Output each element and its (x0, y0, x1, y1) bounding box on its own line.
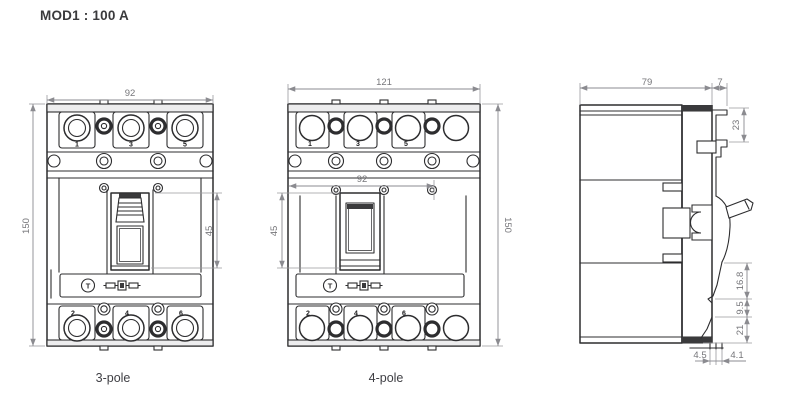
top-terminal-1: 1 (296, 112, 329, 148)
aux-hole (97, 322, 111, 336)
cover-screw (152, 303, 164, 315)
terminal-number: 3 (356, 141, 360, 148)
small-screw (380, 186, 389, 195)
rating-dial (348, 283, 357, 288)
cover-screw (330, 303, 342, 315)
handle-cap (347, 204, 373, 209)
trip-button-label: T (86, 282, 91, 291)
bottom-tab (154, 346, 162, 350)
bottom-terminal-2: 2 (59, 306, 95, 341)
dim-lower-mid: 9.5 (715, 299, 752, 317)
corner-screw (289, 155, 301, 167)
bottom-mount-bar (288, 340, 480, 346)
aux-hole (425, 119, 439, 133)
top-tab (380, 100, 388, 104)
side-tab (663, 183, 682, 191)
top-terminal-5: 5 (167, 112, 203, 149)
panel-top-profile (712, 110, 727, 140)
toggle-handle (116, 198, 144, 222)
bottom-terminal-4: 4 (344, 306, 377, 341)
terminal-number: 5 (183, 142, 187, 149)
svg-text:45: 45 (269, 226, 280, 237)
cover-screw (329, 154, 344, 169)
dim-front-cover: 7 (712, 77, 727, 106)
bottom-terminal-6: 6 (392, 306, 425, 341)
cover-screw (98, 303, 110, 315)
cover-screw (378, 303, 390, 315)
dim-handle-window: 45 (269, 193, 340, 268)
four-pole-front-view: 1 3 5 (269, 77, 513, 385)
svg-text:92: 92 (357, 174, 368, 185)
three-pole-caption: 3-pole (96, 371, 131, 385)
terminal-number: 5 (404, 141, 408, 148)
bottom-tab (332, 346, 340, 350)
top-terminal-3: 3 (113, 112, 149, 149)
dimension-drawing-page: MOD1 : 100 A 1 (0, 0, 800, 409)
top-tab (154, 100, 162, 104)
toggle-handle-area (336, 193, 384, 274)
bottom-tab (428, 346, 436, 350)
svg-text:4.5: 4.5 (693, 350, 706, 361)
cover-screw (377, 154, 392, 169)
svg-text:23: 23 (731, 120, 742, 131)
dim-height: 150 (21, 104, 45, 346)
side-tab (663, 254, 682, 262)
top-terminal-1: 1 (59, 112, 95, 149)
top-tab (332, 100, 340, 104)
panel-tab (697, 141, 716, 153)
bottom-terminal-4: 4 (113, 306, 149, 341)
aux-hole (329, 322, 343, 336)
dim-width: 92 (47, 88, 213, 104)
trip-button-label: T (328, 282, 333, 291)
svg-text:121: 121 (376, 77, 392, 88)
terminal-number: 1 (75, 142, 79, 149)
four-pole-caption: 4-pole (369, 371, 404, 385)
cover-screw (426, 303, 438, 315)
top-terminal-neutral (444, 116, 469, 141)
aux-hole (377, 119, 391, 133)
svg-text:4.1: 4.1 (730, 350, 743, 361)
svg-text:92: 92 (125, 88, 136, 99)
trip-unit-band: T (296, 274, 464, 297)
corner-screw (48, 155, 60, 167)
bottom-terminal-6: 6 (167, 306, 203, 341)
svg-text:7: 7 (717, 77, 722, 88)
top-mount-bar (288, 104, 480, 112)
cover-screw (425, 154, 440, 169)
terminal-number: 3 (129, 142, 133, 149)
bottom-tab (380, 346, 388, 350)
aux-hole (151, 119, 165, 133)
front-cap-bottom (682, 337, 712, 343)
corner-screw (200, 155, 212, 167)
rating-dial (106, 283, 115, 288)
side-clip-plate (663, 208, 690, 238)
corner-screw (467, 155, 479, 167)
bottom-terminal-2: 2 (296, 306, 329, 341)
toggle-handle-area (107, 190, 153, 274)
aux-hole (377, 322, 391, 336)
top-mount-bar (47, 104, 213, 112)
small-screw (154, 184, 163, 193)
small-screw (428, 186, 437, 195)
dim-top-offset: 23 (729, 108, 749, 142)
svg-text:9.5: 9.5 (735, 301, 746, 314)
svg-text:150: 150 (21, 218, 32, 234)
aux-hole (97, 119, 111, 133)
dim-handle-window: 45 (151, 193, 222, 268)
svg-text:45: 45 (204, 226, 215, 237)
top-tab (100, 100, 108, 104)
panel-hook (716, 140, 727, 196)
three-pole-front-view: 1 3 5 (21, 88, 222, 385)
cover-screw (97, 154, 112, 169)
dim-height: 150 (482, 104, 513, 346)
terminal-number: 1 (308, 141, 312, 148)
handle-window (117, 226, 143, 264)
handle-window (346, 203, 374, 253)
side-view: 79 7 23 16.8 9.5 (580, 77, 753, 365)
aux-hole (329, 119, 343, 133)
top-terminal-3: 3 (344, 112, 377, 148)
svg-text:150: 150 (502, 217, 513, 233)
top-terminal-5: 5 (392, 112, 425, 148)
aux-hole (151, 322, 165, 336)
dim-foot: 4.5 4.1 (693, 350, 746, 365)
drawing-canvas: 1 3 5 (0, 0, 800, 409)
dim-depth: 79 (580, 77, 712, 105)
top-tab (428, 100, 436, 104)
cover-screw (151, 154, 166, 169)
svg-text:21: 21 (735, 325, 746, 336)
bottom-terminal-neutral (444, 316, 469, 341)
svg-text:79: 79 (642, 77, 653, 88)
svg-text:16.8: 16.8 (735, 272, 746, 291)
aux-hole (425, 322, 439, 336)
bottom-tab (100, 346, 108, 350)
front-cap-top (682, 105, 712, 111)
trip-unit-band: T (60, 274, 201, 297)
din-clip (691, 205, 712, 240)
